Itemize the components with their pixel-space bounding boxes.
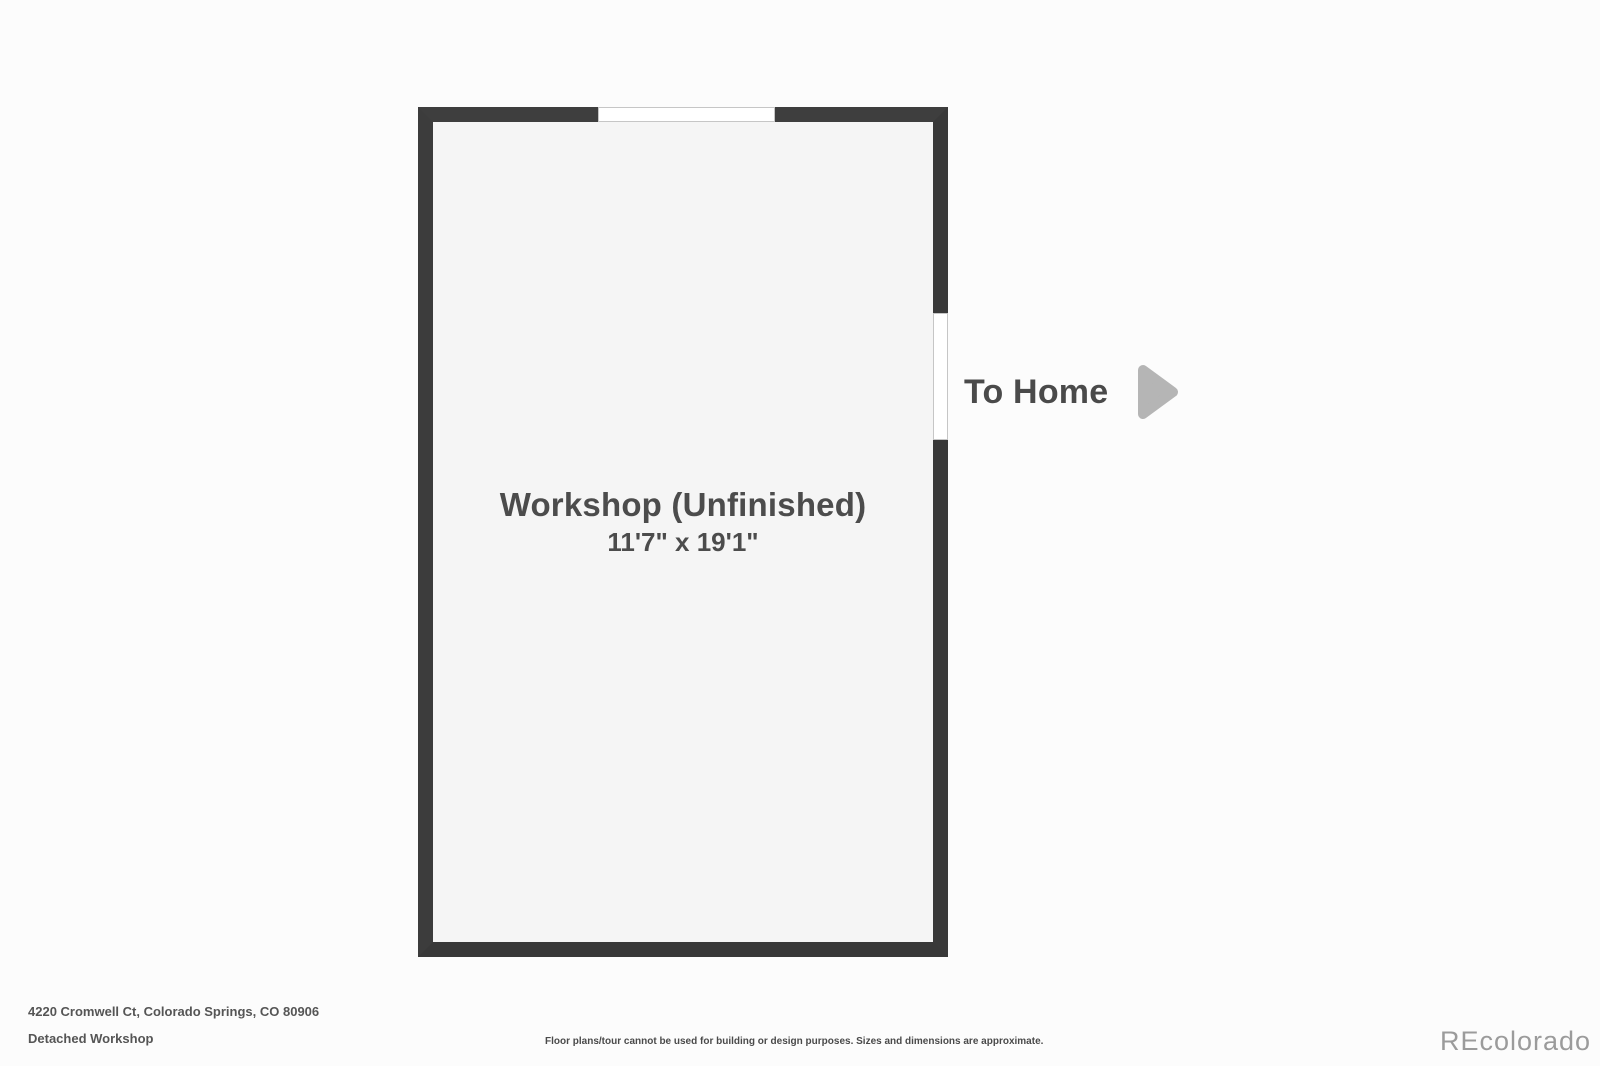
to-home-label: To Home	[964, 373, 1108, 412]
room-name: Workshop (Unfinished)	[433, 485, 933, 525]
plan-name-text: Detached Workshop	[28, 1031, 153, 1046]
window-opening	[598, 107, 775, 122]
address-text: 4220 Cromwell Ct, Colorado Springs, CO 8…	[28, 1004, 319, 1019]
arrow-right-icon	[1135, 361, 1181, 423]
floor-plan: Workshop (Unfinished) 11'7" x 19'1"	[418, 107, 948, 957]
floor-plan-page: Workshop (Unfinished) 11'7" x 19'1" To H…	[0, 0, 1600, 1066]
door-opening	[933, 313, 948, 440]
to-home-indicator: To Home	[964, 357, 1181, 427]
room-dimensions: 11'7" x 19'1"	[433, 525, 933, 559]
recolorado-watermark: REcolorado	[1440, 1026, 1591, 1057]
room-label: Workshop (Unfinished) 11'7" x 19'1"	[433, 485, 933, 559]
disclaimer-text: Floor plans/tour cannot be used for buil…	[545, 1036, 985, 1047]
